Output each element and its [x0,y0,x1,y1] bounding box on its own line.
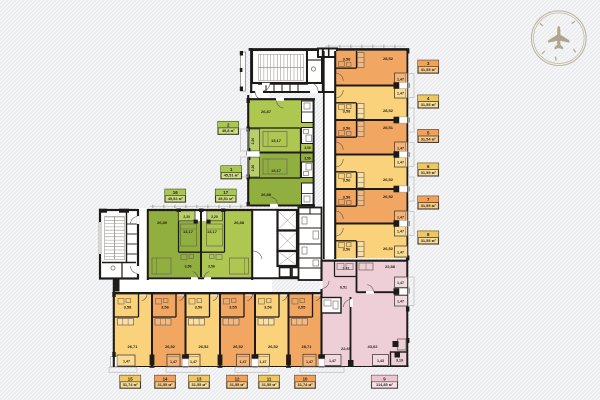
svg-text:31,55 м²: 31,55 м² [192,382,208,387]
svg-text:2,20: 2,20 [211,215,218,219]
svg-text:12: 12 [235,376,240,381]
svg-text:1,47: 1,47 [397,78,404,82]
svg-text:1,47: 1,47 [397,92,404,96]
svg-text:31,55 м²: 31,55 м² [230,382,246,387]
svg-text:26,52: 26,52 [233,344,244,349]
svg-text:45,52 м²: 45,52 м² [168,196,184,201]
svg-text:1,47: 1,47 [306,360,313,364]
svg-text:28,52: 28,52 [383,56,394,61]
svg-text:31,55 м²: 31,55 м² [158,382,174,387]
svg-text:1,47: 1,47 [170,360,177,364]
svg-text:2,20: 2,20 [183,215,190,219]
svg-text:26,52: 26,52 [383,194,394,199]
svg-text:17: 17 [223,190,228,195]
svg-text:1,47: 1,47 [397,161,404,165]
svg-text:1,47: 1,47 [329,359,336,363]
svg-text:26,52: 26,52 [198,344,209,349]
svg-text:11: 11 [267,376,272,381]
svg-text:22,88: 22,88 [385,264,396,269]
svg-text:3,58: 3,58 [124,305,133,310]
svg-text:3,58: 3,58 [185,265,192,269]
svg-text:26,87: 26,87 [261,109,272,114]
svg-text:26,88: 26,88 [261,192,272,197]
svg-text:28,71: 28,71 [301,344,312,349]
svg-text:1,47: 1,47 [123,360,130,364]
svg-text:14: 14 [163,376,168,381]
svg-text:3,56: 3,56 [208,265,215,269]
svg-text:1,47: 1,47 [397,230,404,234]
svg-text:26,52: 26,52 [268,344,279,349]
svg-text:3,56: 3,56 [195,305,204,310]
svg-text:13,17: 13,17 [207,229,218,234]
svg-text:16: 16 [173,190,178,195]
svg-text:2,20: 2,20 [251,138,255,145]
svg-text:1,47: 1,47 [260,360,267,364]
svg-text:31,55 м²: 31,55 м² [421,67,437,72]
svg-text:10: 10 [303,376,308,381]
svg-text:1,43: 1,43 [377,359,384,363]
svg-text:3,56: 3,56 [161,305,170,310]
svg-text:45,51 м²: 45,51 м² [224,173,240,178]
svg-text:26,52: 26,52 [383,246,394,251]
svg-text:1,47: 1,47 [397,147,404,151]
svg-text:3,06: 3,06 [304,146,311,150]
svg-text:28,51: 28,51 [383,125,394,130]
svg-text:3,58: 3,58 [343,195,352,200]
svg-text:26,71: 26,71 [127,344,138,349]
svg-text:31,74 м²: 31,74 м² [123,382,139,387]
svg-text:3,19: 3,19 [396,359,403,363]
svg-text:3,56: 3,56 [304,157,311,161]
svg-text:3,56: 3,56 [264,305,273,310]
svg-text:26,52: 26,52 [165,344,176,349]
svg-text:31,54 м²: 31,54 м² [421,136,437,141]
svg-text:26,52: 26,52 [383,177,394,182]
svg-text:13,17: 13,17 [271,168,282,173]
svg-text:2,20: 2,20 [251,165,255,172]
svg-text:1,47: 1,47 [397,216,404,220]
svg-text:31,74 м²: 31,74 м² [298,382,314,387]
svg-text:3,55: 3,55 [298,305,307,310]
svg-text:1,47: 1,47 [397,251,404,255]
svg-text:28,52: 28,52 [383,108,394,113]
svg-text:15: 15 [128,376,133,381]
svg-text:26,89: 26,89 [157,220,168,225]
svg-text:31,55 м²: 31,55 м² [421,238,437,243]
svg-text:31,55 м²: 31,55 м² [421,203,437,208]
svg-text:45,51 м²: 45,51 м² [218,196,234,201]
svg-text:3,55: 3,55 [229,305,238,310]
svg-text:31,55 м²: 31,55 м² [262,382,278,387]
svg-text:8,51: 8,51 [340,286,347,290]
svg-text:3,56: 3,56 [343,126,352,131]
svg-text:1,47: 1,47 [190,360,197,364]
svg-text:3,58: 3,58 [343,57,352,62]
svg-text:31,55 м²: 31,55 м² [421,102,437,107]
svg-text:13,17: 13,17 [271,138,282,143]
svg-text:26,88: 26,88 [234,220,245,225]
svg-text:43,02: 43,02 [367,344,378,349]
svg-text:1,47: 1,47 [397,281,404,285]
svg-text:1,47: 1,47 [240,360,247,364]
svg-text:13: 13 [197,376,202,381]
svg-text:13,17: 13,17 [183,229,194,234]
svg-text:114,85 м²: 114,85 м² [376,382,394,387]
svg-text:45,8 м²: 45,8 м² [222,128,236,133]
svg-text:31,55 м²: 31,55 м² [421,170,437,175]
svg-text:1,47: 1,47 [397,300,404,304]
